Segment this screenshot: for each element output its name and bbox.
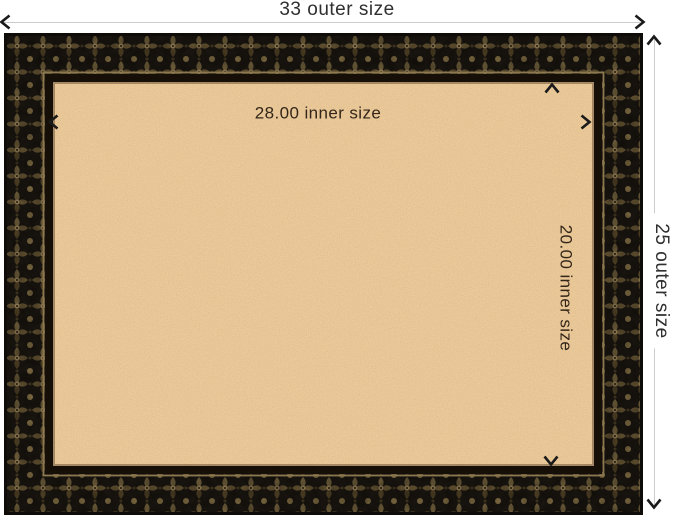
outer-width-dimension-line [3,22,640,23]
outer-height-label: 25 outer size [649,213,673,348]
outer-width-label: 33 outer size [279,0,394,20]
arrow-up-icon [646,33,662,49]
arrow-left-icon [0,14,14,30]
inner-arrow-up-icon [544,81,560,97]
cork-texture [53,82,594,466]
inner-arrow-right-icon [577,114,593,130]
inner-width-label: 28.00 inner size [255,104,381,123]
arrow-right-icon [631,14,647,30]
inner-height-label: 20.00 inner size [557,225,576,351]
arrow-down-icon [646,495,662,511]
inner-arrow-down-icon [543,452,559,468]
inner-arrow-left-icon [46,114,62,130]
cork-board-dimension-diagram: 33 outer size 25 outer size 28.00 inner … [0,0,679,518]
